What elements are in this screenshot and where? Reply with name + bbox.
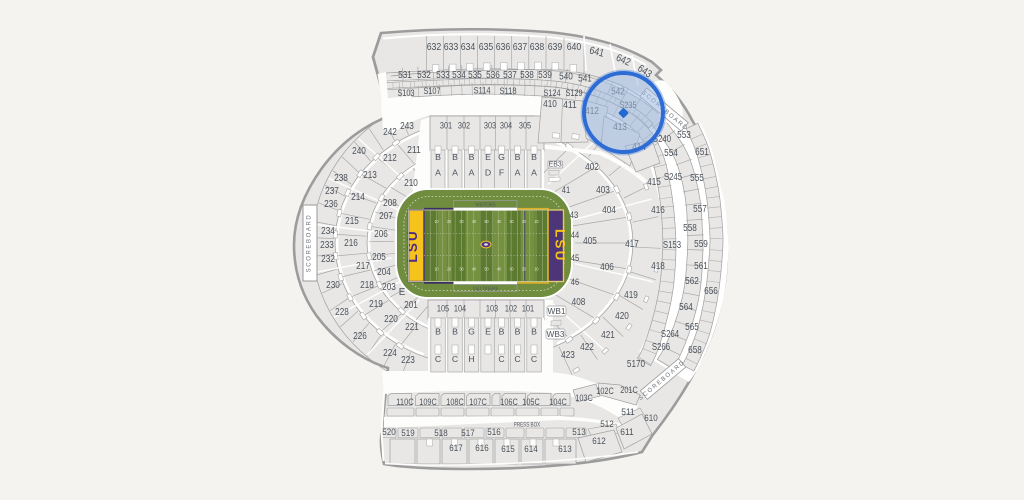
svg-text:41: 41	[562, 185, 570, 195]
svg-text:C: C	[435, 354, 441, 364]
svg-text:PRESS BOX: PRESS BOX	[514, 422, 541, 429]
svg-text:20: 20	[522, 219, 527, 224]
svg-text:10: 10	[535, 219, 540, 224]
svg-text:VISITORS: VISITORS	[475, 202, 496, 208]
svg-text:213: 213	[363, 170, 377, 181]
svg-text:224: 224	[383, 348, 397, 359]
svg-text:204: 204	[377, 267, 391, 278]
svg-text:238: 238	[334, 173, 348, 184]
svg-text:44: 44	[571, 230, 579, 240]
svg-text:A: A	[435, 168, 441, 178]
svg-text:207: 207	[379, 211, 393, 222]
svg-text:614: 614	[524, 444, 538, 455]
svg-text:105: 105	[437, 304, 449, 314]
svg-text:237: 237	[325, 186, 339, 197]
svg-text:214: 214	[351, 192, 365, 203]
svg-text:557: 557	[693, 204, 707, 215]
svg-text:303: 303	[484, 121, 496, 131]
svg-text:562: 562	[685, 276, 699, 287]
svg-text:539: 539	[538, 70, 552, 81]
svg-text:230: 230	[326, 280, 340, 291]
svg-text:201C: 201C	[620, 384, 638, 395]
svg-text:221: 221	[405, 322, 419, 333]
svg-text:518: 518	[434, 428, 447, 439]
svg-text:104C: 104C	[549, 396, 567, 407]
svg-text:B: B	[531, 327, 537, 337]
svg-text:651: 651	[695, 147, 709, 158]
svg-text:240: 240	[352, 146, 366, 157]
svg-text:A: A	[452, 168, 458, 178]
svg-text:46: 46	[571, 277, 579, 287]
svg-text:416: 416	[651, 205, 665, 216]
svg-text:210: 210	[404, 178, 418, 189]
svg-text:640: 640	[567, 41, 582, 53]
svg-text:554: 554	[664, 148, 678, 159]
svg-text:A: A	[531, 168, 537, 178]
svg-text:408: 408	[572, 297, 586, 308]
svg-text:242: 242	[383, 127, 397, 138]
svg-text:205: 205	[372, 252, 386, 263]
svg-text:B: B	[469, 152, 475, 162]
svg-text:B: B	[452, 152, 458, 162]
svg-text:656: 656	[704, 286, 718, 297]
svg-text:639: 639	[548, 41, 563, 53]
svg-text:637: 637	[513, 41, 528, 53]
svg-text:206: 206	[374, 229, 388, 240]
svg-text:S118: S118	[499, 86, 516, 96]
svg-text:S114: S114	[473, 86, 490, 96]
svg-text:635: 635	[479, 41, 494, 53]
svg-text:50: 50	[485, 219, 490, 224]
svg-text:611: 611	[620, 427, 633, 438]
svg-text:LSU: LSU	[405, 229, 420, 263]
svg-text:538: 538	[520, 70, 534, 81]
svg-text:517: 517	[461, 428, 474, 439]
svg-text:40: 40	[497, 219, 502, 224]
svg-text:B: B	[452, 327, 458, 337]
svg-text:513: 513	[572, 427, 585, 438]
svg-text:LSU TIGERS: LSU TIGERS	[473, 286, 499, 292]
svg-text:201: 201	[404, 300, 418, 311]
svg-text:536: 536	[486, 70, 500, 81]
svg-text:10: 10	[535, 267, 540, 272]
svg-text:234: 234	[321, 226, 335, 237]
svg-text:564: 564	[679, 302, 693, 313]
svg-text:20: 20	[447, 219, 452, 224]
svg-text:423: 423	[561, 350, 575, 361]
svg-text:232: 232	[321, 254, 335, 265]
svg-text:615: 615	[501, 444, 514, 455]
svg-text:WB3: WB3	[547, 329, 565, 339]
svg-text:30: 30	[510, 219, 515, 224]
svg-text:B: B	[515, 152, 521, 162]
svg-text:404: 404	[602, 205, 616, 216]
svg-text:50: 50	[485, 267, 490, 272]
svg-text:304: 304	[500, 121, 512, 131]
svg-text:519: 519	[401, 428, 414, 439]
svg-text:S107: S107	[423, 86, 440, 96]
svg-text:106C: 106C	[500, 396, 518, 407]
svg-text:616: 616	[475, 443, 488, 454]
svg-text:402: 402	[585, 162, 599, 173]
svg-text:411: 411	[563, 100, 577, 111]
svg-text:E: E	[485, 152, 491, 162]
svg-text:G: G	[468, 327, 475, 337]
svg-text:108C: 108C	[446, 396, 464, 407]
svg-text:420: 420	[615, 311, 629, 322]
svg-text:217: 217	[356, 261, 370, 272]
svg-text:212: 212	[383, 153, 397, 164]
svg-text:20: 20	[447, 267, 452, 272]
svg-text:520: 520	[382, 427, 395, 438]
svg-text:B: B	[435, 327, 441, 337]
svg-text:634: 634	[461, 41, 476, 53]
svg-text:C: C	[514, 354, 520, 364]
svg-text:10: 10	[435, 219, 440, 224]
svg-text:S245: S245	[664, 172, 683, 183]
svg-text:D: D	[485, 168, 491, 178]
svg-text:415: 415	[647, 177, 661, 188]
svg-text:LSU: LSU	[553, 229, 568, 263]
svg-text:S129: S129	[565, 88, 582, 98]
svg-text:233: 233	[320, 240, 334, 251]
svg-text:WB1: WB1	[548, 306, 566, 316]
svg-text:558: 558	[683, 223, 697, 234]
svg-text:541: 541	[578, 74, 592, 85]
svg-text:555: 555	[690, 173, 704, 184]
svg-text:S153: S153	[663, 240, 682, 251]
svg-text:535: 535	[468, 70, 482, 81]
svg-text:633: 633	[444, 41, 459, 53]
svg-text:A: A	[515, 168, 521, 178]
svg-text:406: 406	[600, 262, 614, 273]
svg-text:559: 559	[694, 239, 708, 250]
svg-text:S264: S264	[661, 329, 680, 340]
svg-text:553: 553	[677, 130, 691, 141]
svg-text:107C: 107C	[469, 396, 487, 407]
svg-text:533: 533	[436, 70, 450, 81]
svg-text:208: 208	[383, 198, 397, 209]
svg-text:617: 617	[449, 443, 462, 454]
svg-text:302: 302	[458, 121, 470, 131]
svg-text:S103: S103	[397, 88, 414, 98]
svg-text:E: E	[485, 327, 491, 337]
svg-text:512: 512	[600, 419, 613, 430]
svg-text:30: 30	[460, 267, 465, 272]
svg-text:B: B	[499, 327, 505, 337]
svg-text:20: 20	[522, 267, 527, 272]
svg-text:220: 220	[384, 314, 398, 325]
svg-text:236: 236	[324, 199, 338, 210]
svg-text:534: 534	[452, 70, 466, 81]
svg-text:30: 30	[460, 219, 465, 224]
svg-text:405: 405	[583, 236, 597, 247]
svg-text:218: 218	[360, 280, 374, 291]
svg-text:418: 418	[651, 261, 665, 272]
svg-text:40: 40	[472, 219, 477, 224]
svg-text:C: C	[498, 354, 504, 364]
svg-text:658: 658	[688, 345, 702, 356]
svg-text:C: C	[531, 354, 537, 364]
svg-text:A: A	[469, 168, 475, 178]
svg-text:H: H	[468, 354, 474, 364]
svg-text:223: 223	[401, 355, 415, 366]
svg-text:531: 531	[398, 70, 412, 81]
svg-text:610: 610	[644, 413, 657, 424]
svg-text:45: 45	[571, 253, 579, 263]
svg-text:226: 226	[353, 331, 367, 342]
svg-text:632: 632	[427, 41, 442, 53]
svg-text:103: 103	[486, 304, 498, 314]
svg-text:10: 10	[435, 267, 440, 272]
svg-text:B: B	[515, 327, 521, 337]
svg-text:101: 101	[522, 304, 534, 314]
svg-text:S266: S266	[652, 342, 671, 353]
svg-text:102: 102	[505, 304, 517, 314]
svg-text:638: 638	[530, 41, 545, 53]
svg-text:561: 561	[694, 261, 708, 272]
svg-text:215: 215	[345, 216, 359, 227]
svg-text:636: 636	[496, 41, 511, 53]
svg-text:422: 422	[580, 342, 594, 353]
svg-text:102C: 102C	[596, 385, 614, 396]
svg-text:216: 216	[344, 238, 358, 249]
svg-text:410: 410	[543, 99, 557, 110]
svg-text:228: 228	[335, 307, 349, 318]
svg-text:211: 211	[407, 145, 421, 156]
svg-text:203: 203	[382, 282, 396, 293]
svg-text:537: 537	[503, 70, 517, 81]
svg-text:301: 301	[440, 121, 452, 131]
svg-text:403: 403	[596, 185, 610, 196]
svg-text:419: 419	[624, 290, 638, 301]
svg-text:612: 612	[592, 436, 605, 447]
svg-text:109C: 109C	[419, 396, 437, 407]
svg-text:104: 104	[454, 304, 466, 314]
svg-text:421: 421	[601, 330, 615, 341]
svg-text:G: G	[498, 152, 505, 162]
svg-text:613: 613	[558, 444, 571, 455]
svg-text:565: 565	[685, 322, 699, 333]
svg-text:43: 43	[570, 210, 578, 220]
svg-text:E: E	[399, 287, 406, 298]
svg-text:30: 30	[510, 267, 515, 272]
svg-text:219: 219	[369, 299, 383, 310]
svg-text:B: B	[435, 152, 441, 162]
svg-text:40: 40	[472, 267, 477, 272]
svg-text:243: 243	[400, 121, 414, 132]
svg-text:305: 305	[519, 121, 531, 131]
svg-text:S124: S124	[543, 88, 560, 98]
svg-text:532: 532	[417, 70, 431, 81]
svg-text:C: C	[452, 354, 458, 364]
svg-text:105C: 105C	[522, 396, 540, 407]
svg-text:5170: 5170	[627, 359, 646, 370]
svg-text:F: F	[499, 168, 504, 178]
svg-text:516: 516	[487, 427, 500, 438]
svg-text:417: 417	[625, 239, 639, 250]
svg-text:SCOREBOARD: SCOREBOARD	[307, 214, 313, 273]
svg-text:40: 40	[497, 267, 502, 272]
svg-text:103C: 103C	[575, 392, 593, 403]
svg-text:EB3: EB3	[549, 162, 562, 169]
svg-text:B: B	[531, 152, 537, 162]
svg-text:511: 511	[621, 407, 634, 418]
svg-text:540: 540	[559, 72, 573, 83]
svg-text:110C: 110C	[396, 396, 414, 407]
